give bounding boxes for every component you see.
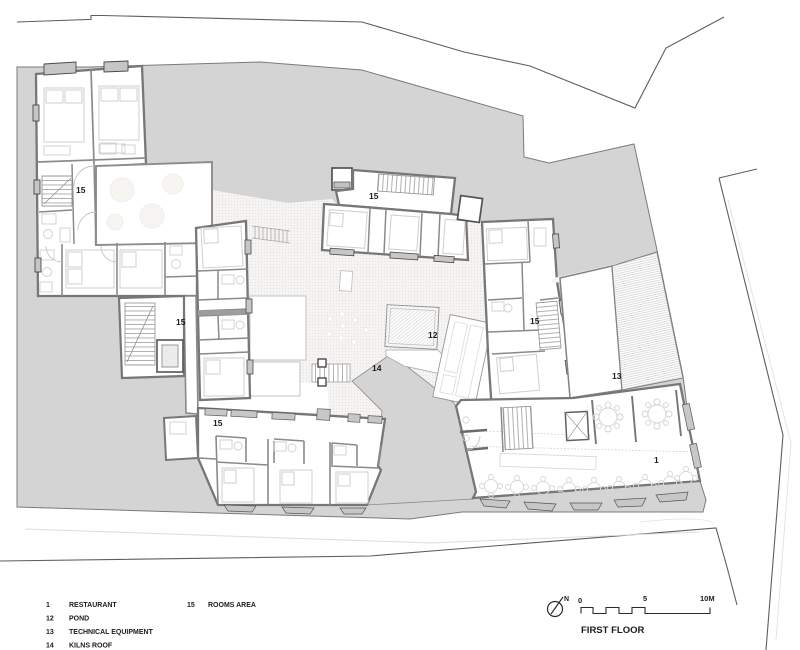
svg-text:15: 15 (530, 316, 540, 326)
svg-text:15: 15 (76, 185, 86, 195)
svg-text:13: 13 (612, 371, 622, 381)
svg-text:10M: 10M (700, 594, 715, 603)
svg-text:12: 12 (428, 330, 438, 340)
svg-text:N: N (564, 596, 569, 603)
svg-text:5: 5 (643, 594, 647, 603)
svg-text:15: 15 (213, 418, 223, 428)
svg-text:KILNS ROOF: KILNS ROOF (69, 643, 113, 650)
svg-text:RESTAURANT: RESTAURANT (69, 602, 117, 609)
svg-text:15: 15 (187, 602, 195, 609)
svg-text:1: 1 (46, 602, 50, 609)
svg-text:ROOMS AREA: ROOMS AREA (208, 602, 256, 609)
svg-text:14: 14 (372, 363, 382, 373)
svg-text:13: 13 (46, 629, 54, 636)
svg-text:POND: POND (69, 616, 89, 623)
svg-text:FIRST FLOOR: FIRST FLOOR (581, 625, 644, 636)
svg-text:TECHNICAL EQUIPMENT: TECHNICAL EQUIPMENT (69, 629, 154, 636)
svg-text:14: 14 (46, 643, 54, 650)
svg-text:12: 12 (46, 616, 54, 623)
svg-text:15: 15 (369, 191, 379, 201)
svg-text:0: 0 (578, 596, 582, 605)
svg-text:1: 1 (654, 455, 659, 465)
svg-text:15: 15 (176, 317, 186, 327)
